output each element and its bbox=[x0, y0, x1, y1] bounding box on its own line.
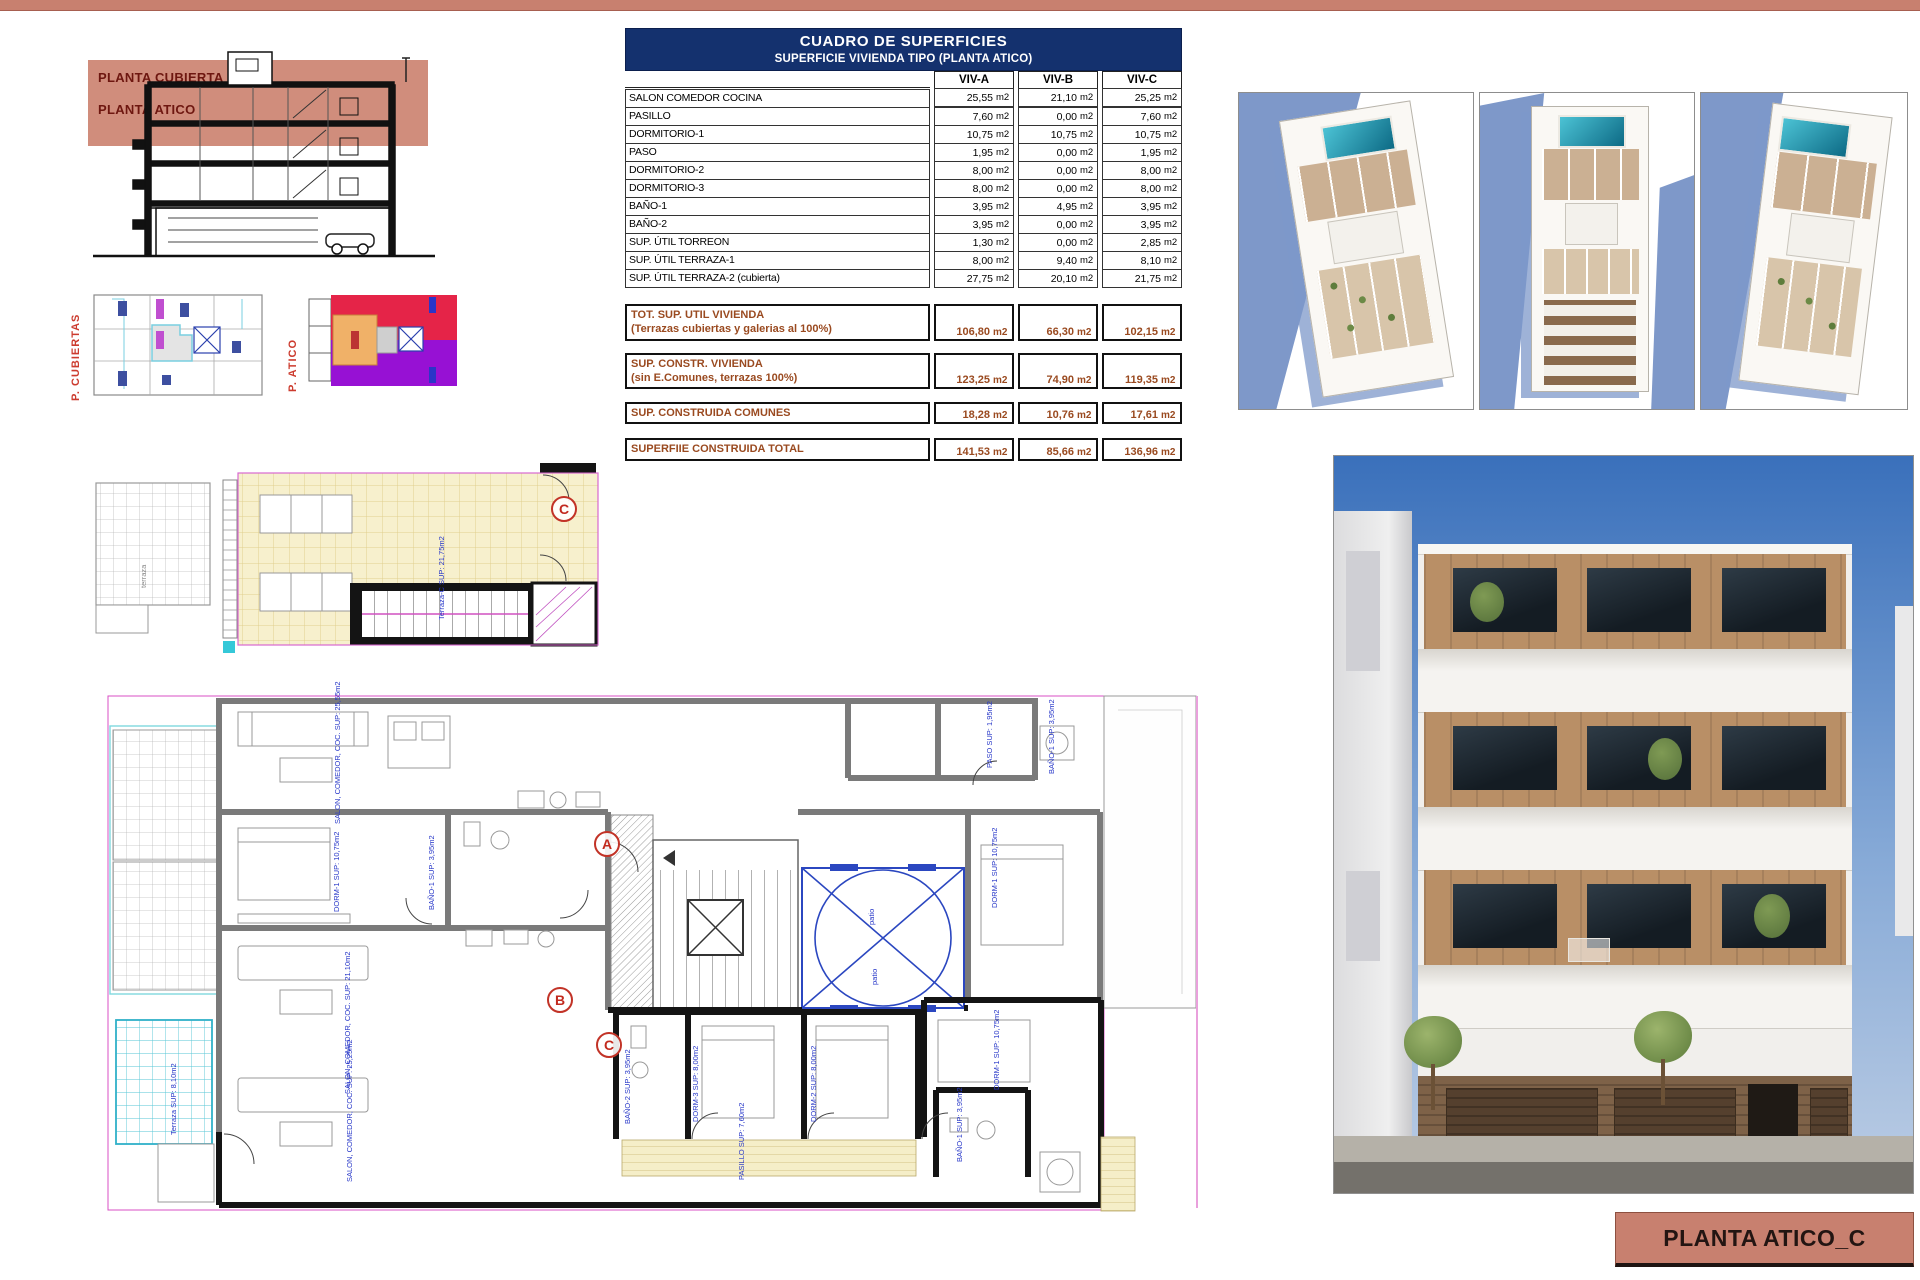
row-value: 0,00m2 bbox=[1018, 161, 1098, 180]
totals-value: 17,61m2 bbox=[1102, 402, 1182, 424]
section-linework bbox=[88, 40, 440, 288]
totals-value: 136,96m2 bbox=[1102, 438, 1182, 460]
building-roof bbox=[1279, 100, 1454, 397]
row-value: 0,00m2 bbox=[1018, 215, 1098, 234]
right-neighbor-edge bbox=[1895, 606, 1913, 936]
totals-value: 18,28m2 bbox=[934, 402, 1014, 424]
marker-a: A bbox=[594, 831, 620, 857]
row-label: PASO bbox=[625, 144, 930, 162]
totals-label: TOT. SUP. UTIL VIVIENDA(Terrazas cubiert… bbox=[625, 304, 930, 341]
totals-value: 10,76m2 bbox=[1018, 402, 1098, 424]
sheet-title-block: PLANTA ATICO_C bbox=[1615, 1212, 1914, 1267]
sidewalk bbox=[1334, 1136, 1913, 1164]
row-label: DORMITORIO-1 bbox=[625, 126, 930, 144]
row-value: 0,00m2 bbox=[1018, 107, 1098, 126]
totals-value: 102,15m2 bbox=[1102, 304, 1182, 341]
table-row: SUP. ÚTIL TERRAZA-1 8,00m2 9,40m2 8,10m2 bbox=[625, 252, 1182, 270]
row-value: 3,95m2 bbox=[934, 215, 1014, 234]
room-label: DORM-2 SUP: 8,00m2 bbox=[810, 1040, 818, 1122]
row-value: 27,75m2 bbox=[934, 269, 1014, 288]
key-plan-atico bbox=[307, 291, 459, 391]
key-plan-atico-label: P. ATICO bbox=[287, 300, 299, 392]
row-value: 8,10m2 bbox=[1102, 251, 1182, 270]
street-tree bbox=[1404, 1016, 1462, 1110]
totals-row-total: SUPERFIIE CONSTRUIDA TOTAL 141,53m2 85,6… bbox=[625, 438, 1182, 460]
row-value: 8,00m2 bbox=[1102, 179, 1182, 198]
table-row: BAÑO-2 3,95m2 0,00m2 3,95m2 bbox=[625, 216, 1182, 234]
row-value: 21,10m2 bbox=[1018, 88, 1098, 107]
table-row: PASILLO 7,60m2 0,00m2 7,60m2 bbox=[625, 108, 1182, 126]
row-value: 9,40m2 bbox=[1018, 251, 1098, 270]
row-value: 0,00m2 bbox=[1018, 179, 1098, 198]
table-row: DORMITORIO-1 10,75m2 10,75m2 10,75m2 bbox=[625, 126, 1182, 144]
marker-b: B bbox=[547, 987, 573, 1013]
room-label: DORM-1 SUP: 10,75m2 bbox=[333, 830, 341, 912]
totals-value: 119,35m2 bbox=[1102, 353, 1182, 390]
row-label: SALON COMEDOR COCINA bbox=[625, 89, 930, 108]
table-subtitle: SUPERFICIE VIVIENDA TIPO (PLANTA ATICO) bbox=[626, 53, 1181, 65]
terrace-c-label: Terraza-C SUP: 21,75m2 bbox=[438, 540, 446, 620]
row-value: 20,10m2 bbox=[1018, 269, 1098, 288]
table-row: DORMITORIO-3 8,00m2 0,00m2 8,00m2 bbox=[625, 180, 1182, 198]
room-label: SALON, COMEDOR, COC. SUP: 25,25m2 bbox=[346, 1070, 354, 1182]
totals-row-util: TOT. SUP. UTIL VIVIENDA(Terrazas cubiert… bbox=[625, 304, 1182, 341]
room-label: PASILLO SUP: 7,60m2 bbox=[738, 1140, 746, 1180]
room-label: BAÑO-2 SUP: 3,95m2 bbox=[624, 1052, 632, 1124]
column-header-viv-c: VIV-C bbox=[1102, 71, 1182, 89]
totals-row-comunes: SUP. CONSTRUIDA COMUNES 18,28m2 10,76m2 … bbox=[625, 402, 1182, 424]
facade-floor bbox=[1418, 554, 1852, 712]
facade-building bbox=[1418, 544, 1852, 1076]
totals-value: 106,80m2 bbox=[934, 304, 1014, 341]
table-title: CUADRO DE SUPERFICIES bbox=[626, 33, 1181, 50]
row-label: DORMITORIO-3 bbox=[625, 180, 930, 198]
table-row: PASO 1,95m2 0,00m2 1,95m2 bbox=[625, 144, 1182, 162]
row-value: 1,95m2 bbox=[934, 143, 1014, 162]
row-value: 10,75m2 bbox=[1102, 125, 1182, 144]
facade-render bbox=[1333, 455, 1914, 1194]
totals-value: 85,66m2 bbox=[1018, 438, 1098, 460]
row-value: 7,60m2 bbox=[1102, 107, 1182, 126]
totals-value: 141,53m2 bbox=[934, 438, 1014, 460]
table-row: SALON COMEDOR COCINA 25,55m2 21,10m2 25,… bbox=[625, 89, 1182, 108]
totals-value: 123,25m2 bbox=[934, 353, 1014, 390]
building-section-drawing: PLANTA CUBIERTA PLANTA ATICO bbox=[88, 40, 440, 288]
neighbor-building bbox=[1334, 511, 1412, 1136]
facade-floor bbox=[1418, 712, 1852, 870]
row-value: 4,95m2 bbox=[1018, 197, 1098, 216]
row-value: 8,00m2 bbox=[934, 179, 1014, 198]
row-value: 3,95m2 bbox=[934, 197, 1014, 216]
row-label: SUP. ÚTIL TERRAZA-2 (cubierta) bbox=[625, 270, 930, 288]
marker-c: C bbox=[596, 1032, 622, 1058]
render-aerial-2 bbox=[1479, 92, 1695, 410]
table-row: DORMITORIO-2 8,00m2 0,00m2 8,00m2 bbox=[625, 162, 1182, 180]
table-row: SUP. ÚTIL TORREON 1,30m2 0,00m2 2,85m2 bbox=[625, 234, 1182, 252]
row-value: 10,75m2 bbox=[1018, 125, 1098, 144]
row-value: 2,85m2 bbox=[1102, 233, 1182, 252]
row-label: BAÑO-2 bbox=[625, 216, 930, 234]
row-value: 25,25m2 bbox=[1102, 88, 1182, 107]
room-label: Terraza SUP: 8,10m2 bbox=[170, 1073, 178, 1135]
key-plan-cubiertas bbox=[92, 289, 268, 403]
row-label: DORMITORIO-2 bbox=[625, 162, 930, 180]
marker-c-upper: C bbox=[551, 496, 577, 522]
table-row: BAÑO-1 3,95m2 4,95m2 3,95m2 bbox=[625, 198, 1182, 216]
sheet-title: PLANTA ATICO_C bbox=[1663, 1225, 1866, 1252]
surface-table-header: CUADRO DE SUPERFICIES SUPERFICIE VIVIEND… bbox=[625, 28, 1182, 71]
column-header-row: VIV-A VIV-B VIV-C bbox=[625, 71, 1182, 89]
row-value: 8,00m2 bbox=[934, 161, 1014, 180]
row-value: 10,75m2 bbox=[934, 125, 1014, 144]
building-roof bbox=[1531, 106, 1649, 392]
terrace-plan bbox=[88, 455, 608, 700]
row-label: PASILLO bbox=[625, 108, 930, 126]
room-label: DORM-1 SUP: 10,75m2 bbox=[993, 1012, 1001, 1090]
room-label: PASO SUP: 1,95m2 bbox=[986, 712, 994, 768]
room-label: DORM-1 SUP: 10,75m2 bbox=[991, 830, 999, 908]
totals-label: SUP. CONSTR. VIVIENDA(sin E.Comunes, ter… bbox=[625, 353, 930, 390]
street-tree bbox=[1634, 1011, 1692, 1105]
room-label: BAÑO-1 SUP: 3,95m2 bbox=[956, 1090, 964, 1162]
column-header-spacer bbox=[625, 71, 930, 88]
totals-value: 74,90m2 bbox=[1018, 353, 1098, 390]
row-value: 7,60m2 bbox=[934, 107, 1014, 126]
row-value: 8,00m2 bbox=[934, 251, 1014, 270]
row-value: 8,00m2 bbox=[1102, 161, 1182, 180]
totals-label: SUP. CONSTRUIDA COMUNES bbox=[625, 402, 930, 424]
totals-value: 66,30m2 bbox=[1018, 304, 1098, 341]
key-plan-cubiertas-label: P. CUBIERTAS bbox=[70, 293, 82, 401]
row-value: 25,55m2 bbox=[934, 88, 1014, 107]
totals-row-constr: SUP. CONSTR. VIVIENDA(sin E.Comunes, ter… bbox=[625, 353, 1182, 390]
row-value: 0,00m2 bbox=[1018, 233, 1098, 252]
room-label: BAÑO-1 SUP: 3,95m2 bbox=[1048, 712, 1056, 774]
room-label: patio bbox=[868, 895, 876, 925]
row-value: 3,95m2 bbox=[1102, 215, 1182, 234]
row-label: SUP. ÚTIL TERRAZA-1 bbox=[625, 252, 930, 270]
row-value: 1,30m2 bbox=[934, 233, 1014, 252]
row-label: BAÑO-1 bbox=[625, 198, 930, 216]
sheet-top-strip bbox=[0, 0, 1920, 11]
row-value: 3,95m2 bbox=[1102, 197, 1182, 216]
column-header-viv-a: VIV-A bbox=[934, 71, 1014, 89]
room-label: patio bbox=[871, 955, 879, 985]
render-aerial-1 bbox=[1238, 92, 1474, 410]
row-label: SUP. ÚTIL TORREON bbox=[625, 234, 930, 252]
row-value: 0,00m2 bbox=[1018, 143, 1098, 162]
main-floor-plan bbox=[88, 690, 1233, 1218]
road bbox=[1334, 1162, 1913, 1193]
totals-label: SUPERFIIE CONSTRUIDA TOTAL bbox=[625, 438, 930, 460]
facade-floor bbox=[1418, 870, 1852, 1028]
row-value: 1,95m2 bbox=[1102, 143, 1182, 162]
surface-table: CUADRO DE SUPERFICIES SUPERFICIE VIVIEND… bbox=[625, 28, 1182, 461]
room-label: DORM-3 SUP: 8,00m2 bbox=[692, 1040, 700, 1122]
column-header-viv-b: VIV-B bbox=[1018, 71, 1098, 89]
render-aerial-3 bbox=[1700, 92, 1908, 410]
neighbor-terrace-label: terraza bbox=[140, 528, 148, 588]
room-label: SALON, COMEDOR, COC. SUP: 25,55m2 bbox=[334, 712, 342, 824]
table-row: SUP. ÚTIL TERRAZA-2 (cubierta) 27,75m2 2… bbox=[625, 270, 1182, 288]
row-value: 21,75m2 bbox=[1102, 269, 1182, 288]
room-label: BAÑO-1 SUP: 3,95m2 bbox=[428, 838, 436, 910]
